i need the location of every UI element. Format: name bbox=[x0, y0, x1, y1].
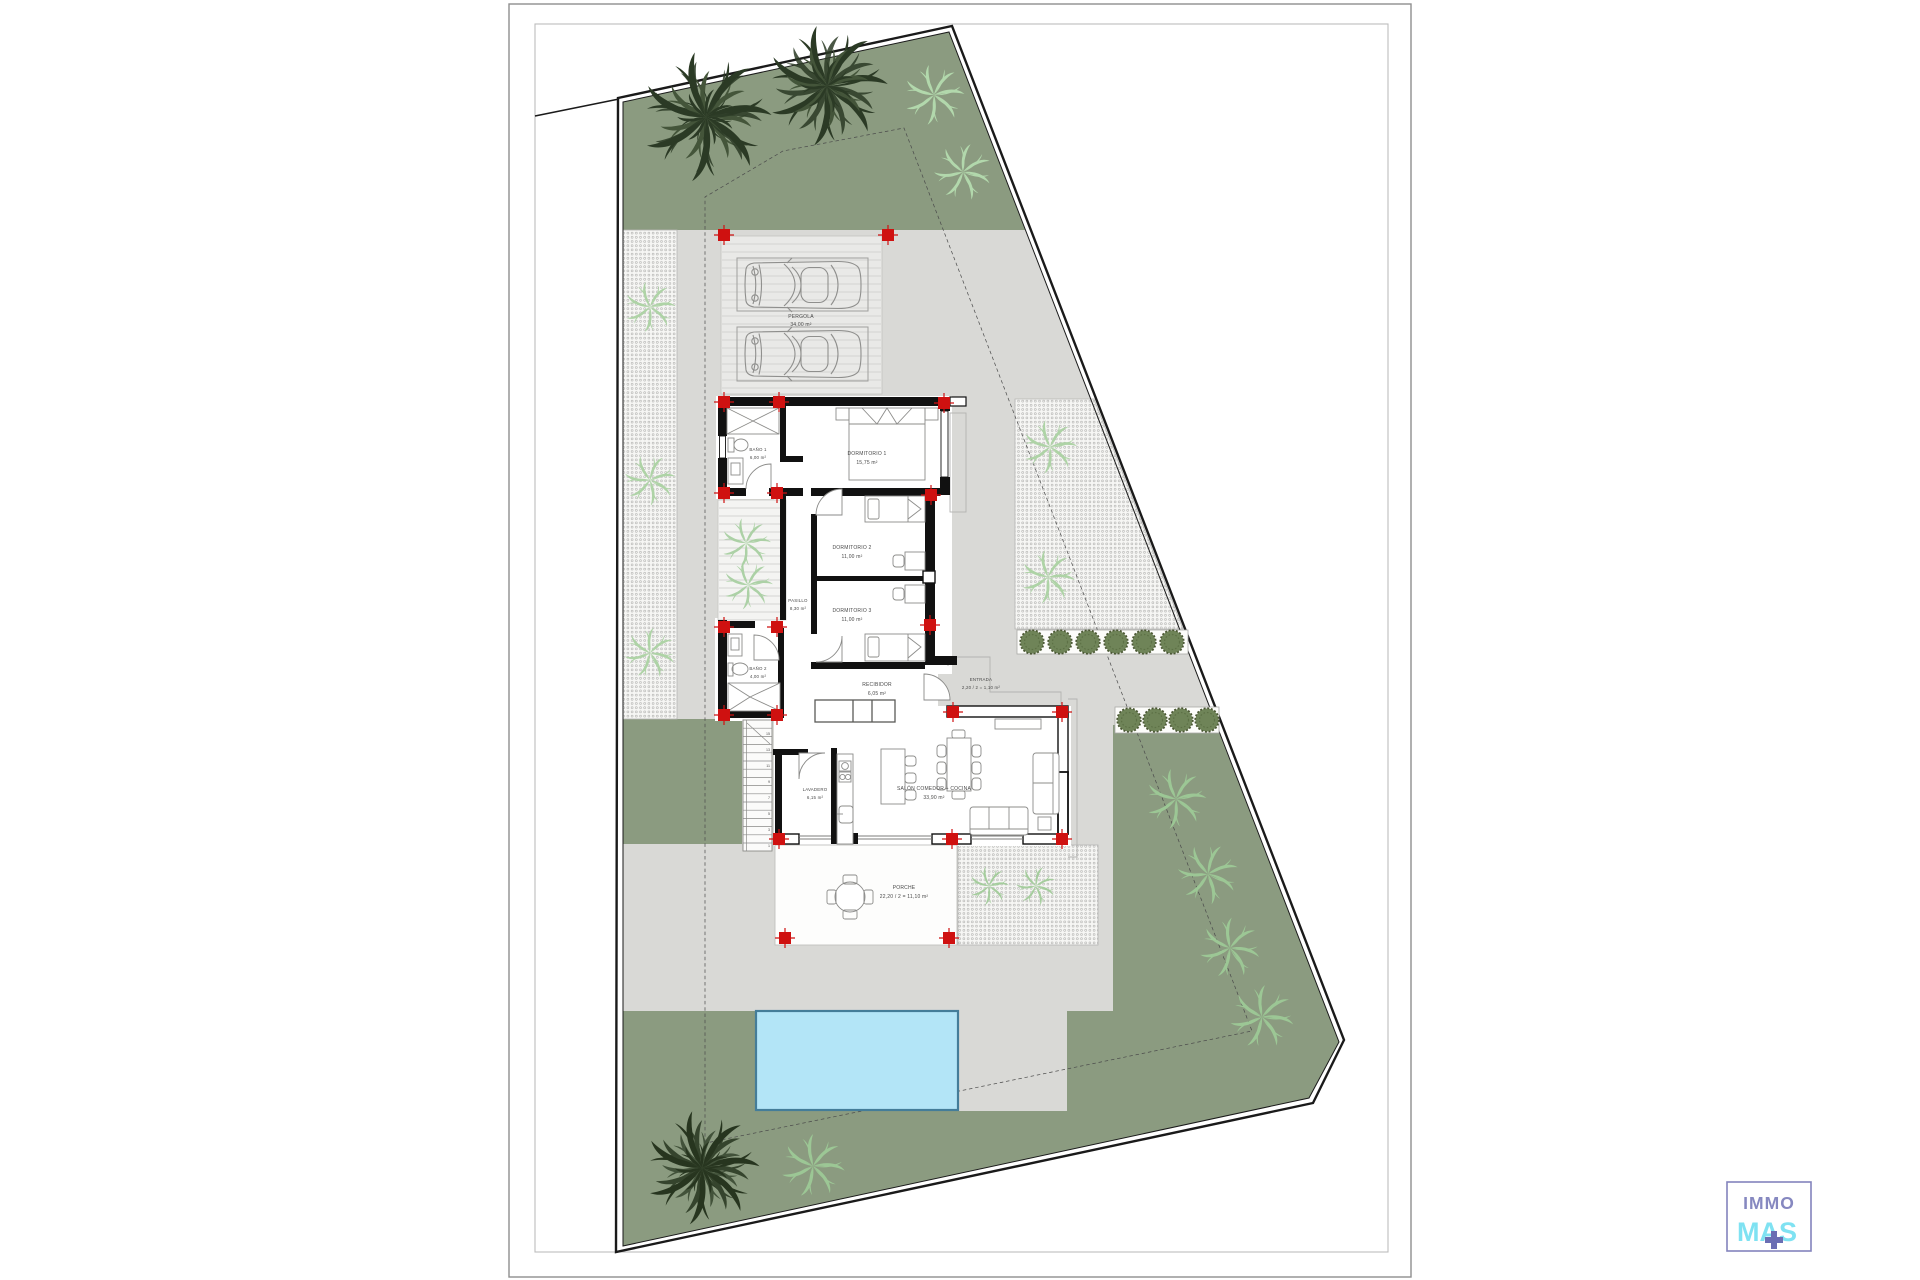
svg-text:7: 7 bbox=[768, 796, 770, 800]
svg-text:6,05 m²: 6,05 m² bbox=[868, 691, 886, 697]
svg-text:BAÑO 1: BAÑO 1 bbox=[749, 447, 767, 452]
svg-text:IMMO: IMMO bbox=[1743, 1193, 1795, 1213]
svg-text:3: 3 bbox=[768, 828, 770, 832]
svg-text:DORMITORIO 3: DORMITORIO 3 bbox=[833, 608, 872, 614]
svg-text:8,30 m²: 8,30 m² bbox=[790, 606, 807, 611]
svg-text:RECIBIDOR: RECIBIDOR bbox=[862, 682, 892, 688]
svg-text:BAÑO 2: BAÑO 2 bbox=[749, 666, 767, 671]
svg-text:34,00 m²: 34,00 m² bbox=[790, 322, 811, 328]
svg-text:ENTRADA: ENTRADA bbox=[970, 677, 992, 682]
svg-text:11: 11 bbox=[766, 764, 770, 768]
svg-text:PORCHE: PORCHE bbox=[893, 885, 916, 891]
svg-text:DORMITORIO 1: DORMITORIO 1 bbox=[848, 451, 887, 457]
svg-text:PASILLO: PASILLO bbox=[788, 598, 808, 603]
svg-text:1: 1 bbox=[768, 844, 770, 848]
svg-text:SALÓN COMEDOR + COCINA: SALÓN COMEDOR + COCINA bbox=[897, 785, 971, 792]
svg-text:11,00 m²: 11,00 m² bbox=[842, 617, 863, 623]
svg-text:PERGOLA: PERGOLA bbox=[788, 314, 814, 320]
svg-text:6,00 m²: 6,00 m² bbox=[750, 455, 767, 460]
svg-text:33,90 m²: 33,90 m² bbox=[923, 795, 944, 801]
svg-text:22,20 / 2 = 11,10 m²: 22,20 / 2 = 11,10 m² bbox=[880, 894, 929, 900]
svg-text:4,00 m²: 4,00 m² bbox=[750, 674, 767, 679]
svg-text:2,20 / 2 = 1,10 m²: 2,20 / 2 = 1,10 m² bbox=[962, 685, 1000, 690]
svg-text:5: 5 bbox=[768, 812, 770, 816]
svg-text:15,75 m²: 15,75 m² bbox=[856, 460, 877, 466]
svg-text:11,00 m²: 11,00 m² bbox=[842, 554, 863, 560]
svg-text:6,15 m²: 6,15 m² bbox=[807, 795, 824, 800]
svg-text:LAVADERO: LAVADERO bbox=[803, 787, 828, 792]
svg-text:9: 9 bbox=[768, 780, 770, 784]
svg-text:DORMITORIO 2: DORMITORIO 2 bbox=[833, 545, 872, 551]
svg-text:13: 13 bbox=[766, 748, 770, 752]
svg-text:15: 15 bbox=[766, 732, 770, 736]
